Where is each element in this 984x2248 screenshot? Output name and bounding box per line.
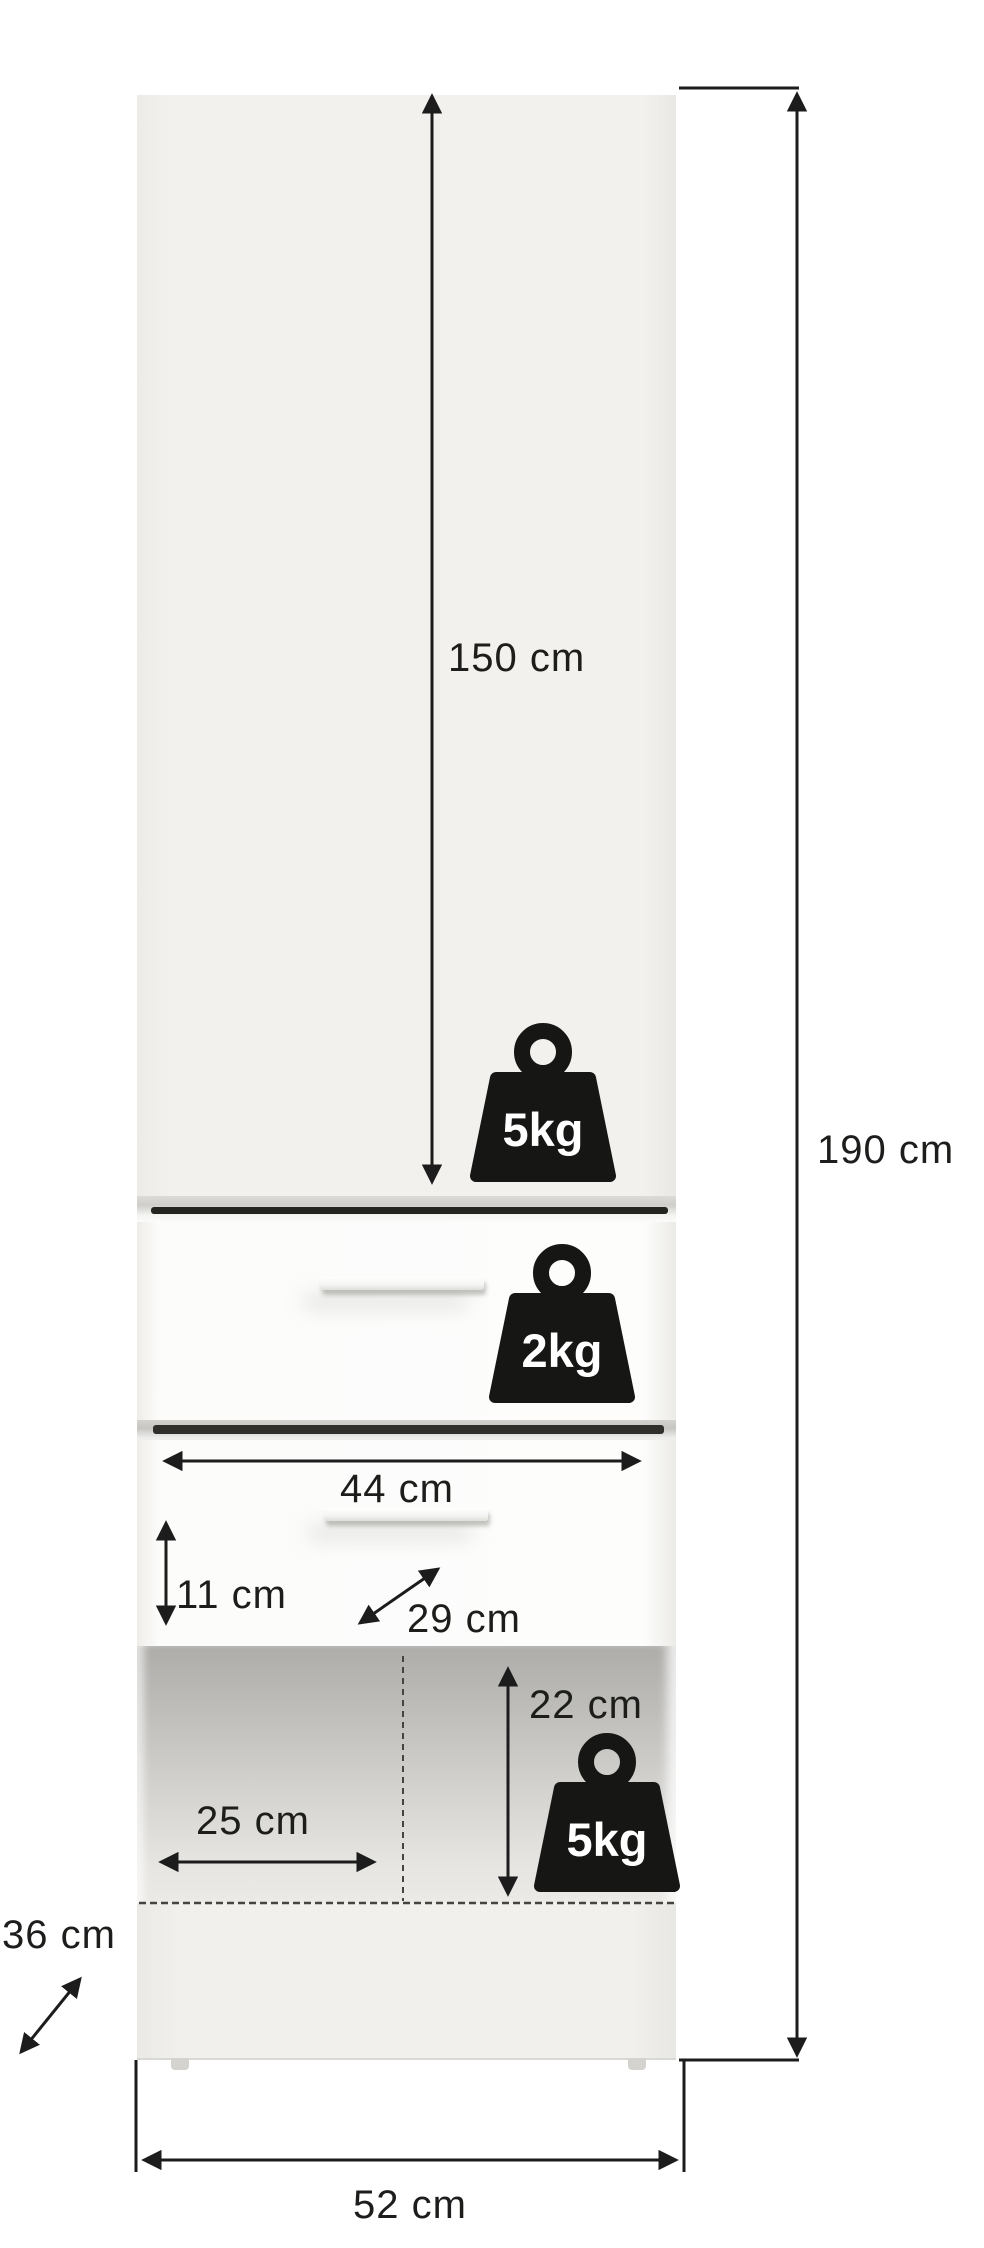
drawer-drawer-gap — [137, 1420, 676, 1440]
weight-icon-5kg-door: 5kg — [463, 1022, 623, 1187]
door-drawer-gap — [137, 1196, 676, 1222]
weight-ring — [586, 1741, 628, 1783]
plinth-panel — [137, 1903, 676, 2060]
arrow-cabinet-depth-36 — [21, 1979, 80, 2052]
gap-shadow-line — [151, 1207, 668, 1214]
dim-label-drawer-height: 11 cm — [176, 1572, 287, 1618]
gap-shadow-line — [153, 1425, 664, 1434]
dim-label-niche-height: 22 cm — [529, 1682, 643, 1728]
weight-icon-2kg-drawer: 2kg — [482, 1243, 642, 1408]
dim-label-cabinet-width: 52 cm — [330, 2182, 490, 2228]
weight-label: 5kg — [503, 1103, 584, 1156]
dim-label-total-height: 190 cm — [817, 1127, 954, 1173]
weight-ring — [522, 1031, 564, 1073]
dim-label-cabinet-depth: 36 cm — [2, 1912, 116, 1958]
dim-label-drawer-width: 44 cm — [317, 1466, 477, 1512]
weight-label: 2kg — [522, 1324, 603, 1377]
dim-label-door-height: 150 cm — [448, 635, 585, 681]
dim-label-niche-depth: 25 cm — [196, 1798, 310, 1844]
weight-ring — [541, 1252, 583, 1294]
drawer-1-handle — [320, 1277, 484, 1290]
dim-label-drawer-depth: 29 cm — [407, 1596, 521, 1642]
dimension-diagram: 5kg 2kg 5kg 150 cm 190 cm 44 cm 11 cm 29… — [0, 0, 984, 2248]
cabinet-foot-right — [628, 2058, 646, 2070]
weight-label: 5kg — [567, 1813, 648, 1866]
weight-icon-5kg-shelf: 5kg — [527, 1732, 687, 1897]
cabinet-foot-left — [171, 2058, 189, 2070]
